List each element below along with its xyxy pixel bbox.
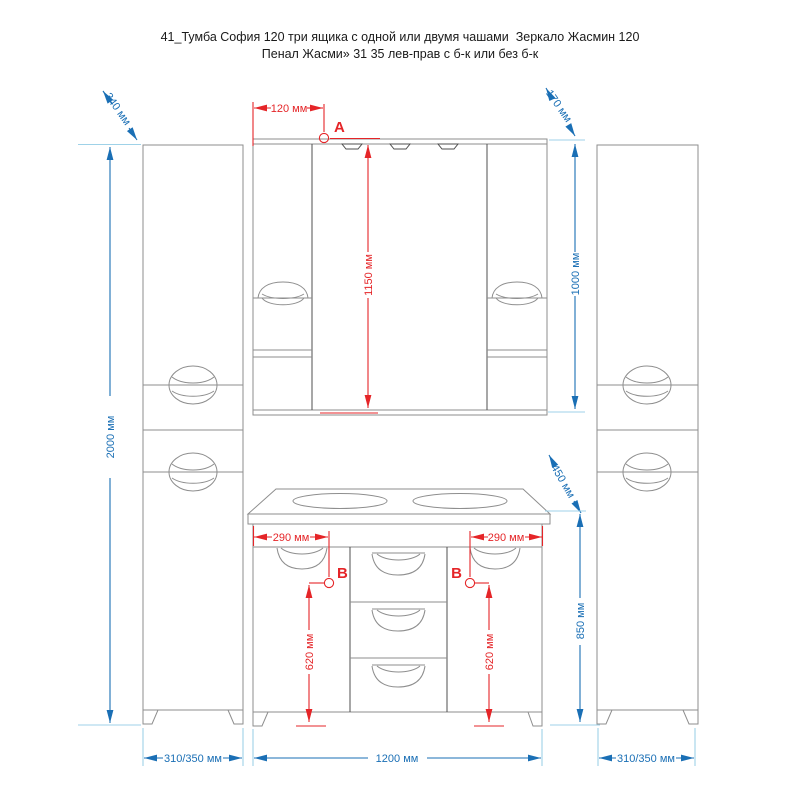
dim-label-290-left: 290 мм [273,532,310,544]
drawer-handle-1 [372,553,425,575]
dim-label-620-left: 620 мм [304,634,316,671]
right-pencil-body [597,145,698,710]
dimension-socket-offset-right: 290 мм B [451,526,542,588]
vanity-leg-right [528,712,542,726]
mirror-right-column [487,282,547,357]
dim-label-1000: 1000 мм [570,253,582,296]
dim-label-310-350-left: 310/350 мм [164,753,222,765]
left-pencil-leg-left [143,710,158,724]
mirror-light-2 [390,144,410,149]
vanity-leg-left [253,712,268,726]
dim-label-290-right: 290 мм [488,532,525,544]
left-door-handle [277,548,327,569]
dimension-socket-height-right: 620 мм [474,583,504,726]
dimension-pencil-depth-left: 340 мм [102,91,137,140]
point-a-circle [319,133,328,142]
mirror-left-column-handle [258,282,308,305]
dim-label-620-right: 620 мм [484,634,496,671]
dim-label-2000: 2000 мм [105,416,117,459]
drawing-title-line2: Пенал Жасми» 31 35 лев-прав с б-к или бе… [262,47,539,61]
mirror-right-column-handle [492,282,542,305]
dimension-vanity-width: 1200 мм [253,729,542,766]
basin-right [413,494,507,509]
point-a-label: A [334,119,345,136]
dim-label-1200: 1200 мм [376,753,419,765]
dimension-pencil-total-height: 2000 мм [78,145,141,726]
drawing-title-line1: 41_Тумба София 120 три ящика с одной или… [161,30,640,44]
dim-label-850: 850 мм [575,603,587,640]
drawer-handle-3 [372,665,425,687]
right-pencil-leg-left [597,710,612,724]
dim-label-340: 340 мм [102,91,133,128]
mirror-light-3 [438,144,458,149]
dim-label-310-350-right: 310/350 мм [617,753,675,765]
point-b-left-circle [324,578,333,587]
dim-label-1150: 1150 мм [363,254,375,296]
vanity-unit [248,489,550,726]
vanity-body [253,524,542,712]
left-pencil-cabinet [143,145,243,724]
dim-label-170: 170 мм [543,88,574,125]
point-b-right-label: B [451,565,462,582]
mirror-light-1 [342,144,362,149]
dimension-mirror-height: 1150 мм [320,139,380,414]
right-pencil-leg-right [683,710,698,724]
dimension-mirror-depth: 170 мм [543,88,575,136]
left-pencil-leg-right [228,710,243,724]
mirror-frame [253,139,547,415]
mirror-left-column [253,282,312,357]
left-pencil-body [143,145,243,710]
countertop-front-edge [248,514,550,524]
drawer-handle-2 [372,609,425,631]
right-pencil-cabinet [597,145,698,724]
dimension-vanity-total-height: 850 мм [545,511,600,725]
furniture-dimension-drawing: 41_Тумба София 120 три ящика с одной или… [0,0,800,800]
dimension-countertop-depth: 450 мм [548,455,581,513]
basin-left [293,494,387,509]
mirror-cabinet [253,139,547,415]
dimension-pencil-width-right: 310/350 мм [598,728,695,766]
point-b-right-circle [465,578,474,587]
dimension-socket-offset-left: 290 мм B [254,526,349,588]
dimension-pencil-width-left: 310/350 мм [143,728,243,766]
dim-label-120: 120 мм [271,103,308,115]
dimension-socket-height-left: 620 мм [296,583,326,726]
dimension-pencil-upper-section: 1000 мм [548,140,585,412]
dim-label-450: 450 мм [548,463,577,501]
right-door-handle [470,548,520,569]
point-b-left-label: B [337,565,348,582]
technical-drawing-page: 41_Тумба София 120 три ящика с одной или… [0,0,800,800]
